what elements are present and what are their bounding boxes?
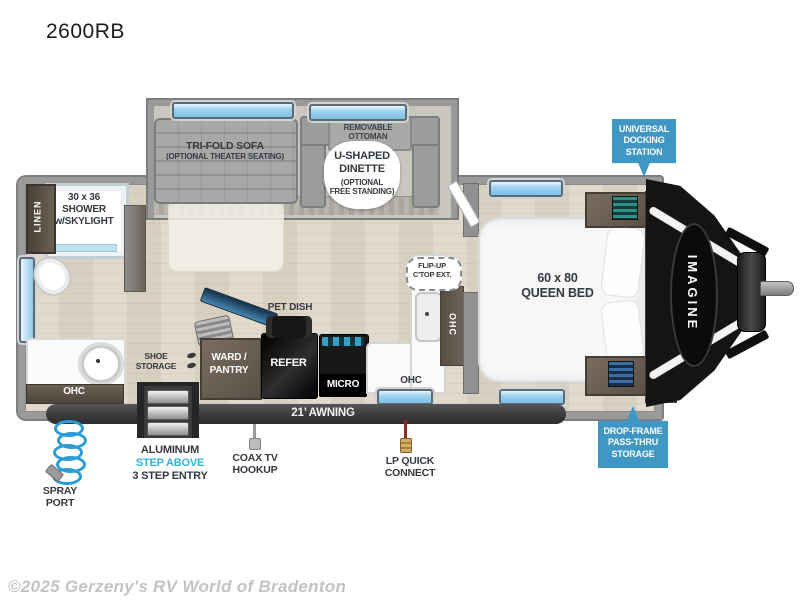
shower-label: 30 x 36 SHOWER w/SKYLIGHT [45,192,123,227]
step-tread [147,390,189,404]
lp-quick-connect-valve [404,420,407,440]
coax-label: COAX TV HOOKUP [213,452,297,477]
kitchen-ohc-side-label: OHC [445,285,458,365]
micro-label: MICRO [319,379,367,390]
bathroom-sink [78,342,124,386]
dresser-bottom-shelves [608,361,634,387]
refer-label: REFER [261,357,316,369]
spray-port-label: SPRAY PORT [30,485,90,510]
bathroom-divider-wall [124,205,146,292]
sofa-window [172,102,294,119]
bathroom-ohc-label: OHC [26,386,122,397]
kitchen-bottom-window [377,389,433,405]
linen-label: LINEN [33,167,46,267]
stove-burner-knobs [322,337,364,346]
dinette-label: U-SHAPED DINETTE (OPTIONAL FREE STANDING… [324,150,400,197]
page-title: 2600RB [46,20,125,44]
pet-dish-label: PET DISH [250,302,330,314]
kitchen-ohc-bottom-label: OHC [388,375,434,387]
step-tread [147,422,189,436]
imagine-logo: IMAGINE [684,218,700,368]
dresser-top-shelves [612,196,638,220]
kitchen-sink [415,292,442,342]
watermark: ©2025 Gerzeny's RV World of Bradenton [8,577,346,597]
ottoman-label: REMOVABLE OTTOMAN [328,123,408,142]
sofa-label: TRI-FOLD SOFA (OPTIONAL THEATER SEATING) [150,140,300,162]
coax-connector-tip [249,438,261,450]
area-rug [168,198,284,272]
dinette-window [309,104,407,121]
shoe-storage-label: SHOE STORAGE [126,351,186,371]
tongue-jack [760,281,794,296]
lp-quick-connect-label: LP QUICK CONNECT [368,455,452,480]
entry-steps [137,382,199,438]
queen-bed-label: 60 x 80 QUEEN BED [495,271,620,301]
docking-station-badge: UNIVERSAL DOCKING STATION [612,119,676,177]
entry-steps-label: ALUMINUM STEP ABOVE 3 STEP ENTRY [118,444,222,483]
awning-label: 21’ AWNING [268,407,378,419]
pet-dish [266,316,312,338]
floorplan-image: 2600RB 30 x 36 SHOWER w/SKYLIGHT LINEN O… [0,0,800,600]
bathroom-sink-drain [96,359,100,363]
flip-up-countertop-label: FLIP-UP C'TOP EXT. [406,262,458,280]
shower-skylight [53,244,117,252]
bedroom-top-window [489,180,563,197]
ward-pantry-label: WARD / PANTRY [200,352,258,377]
kitchen-sink-drain [425,312,429,316]
bedroom-bottom-window [499,389,565,405]
step-tread [147,406,189,420]
lp-quick-connect-fitting [400,438,412,453]
bedroom-wall-bottom [463,292,479,394]
